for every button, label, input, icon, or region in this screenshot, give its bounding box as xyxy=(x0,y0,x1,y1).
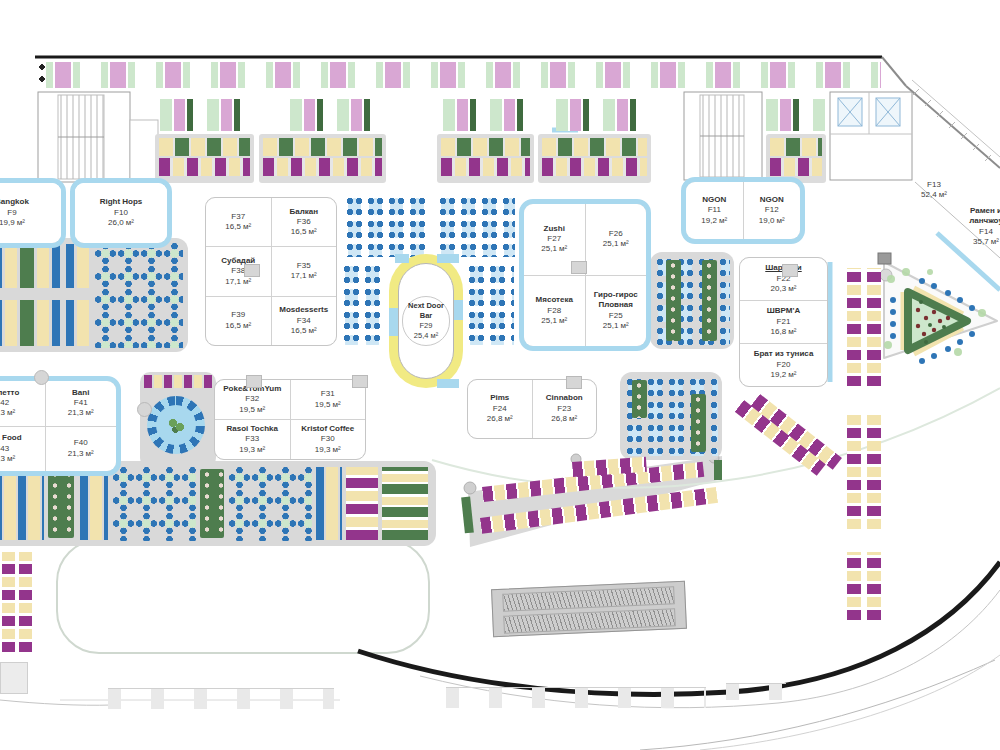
elevator-rooms-northeast xyxy=(830,92,912,180)
unit-area: 19,9 м² xyxy=(0,218,25,228)
big-round-table-planter xyxy=(156,405,196,445)
unit-code: F28 xyxy=(547,306,561,316)
bar-blue-segment xyxy=(454,300,463,320)
unit-code: F31 xyxy=(321,389,335,399)
unit-code: F25 xyxy=(609,311,623,321)
unit-name: ШВРМ'А xyxy=(767,306,800,316)
unit-f40[interactable]: F40 21,3 м² xyxy=(46,427,116,472)
seating-booths-4 xyxy=(556,99,648,131)
communal-table xyxy=(691,394,706,452)
band-benches-3 xyxy=(316,467,342,540)
unit-f34[interactable]: Mosdesserts F34 16,5 м² xyxy=(272,297,337,345)
unit-area: 21,3 м² xyxy=(0,408,15,418)
service-hatch xyxy=(244,264,260,277)
counter-row-top xyxy=(542,138,647,156)
counter-row-bottom xyxy=(770,158,822,176)
unit-area: 16,5 м² xyxy=(291,326,317,336)
band-benches-2 xyxy=(80,467,108,540)
seating-west-aisle xyxy=(0,288,90,300)
staircase-north-central xyxy=(684,92,762,180)
unit-code: F35 xyxy=(297,261,311,271)
seating-east-gap xyxy=(845,386,883,412)
unit-name: Омлетто xyxy=(0,388,19,398)
unit-code: F32 xyxy=(245,394,259,404)
unit-f13[interactable]: F13 52,4 м² xyxy=(905,180,963,201)
unit-name: Next Door Bar xyxy=(404,301,448,321)
counter-row-top xyxy=(441,138,530,156)
seating-booths-2 xyxy=(290,99,384,131)
unit-f35[interactable]: F35 17,1 м² xyxy=(272,247,337,295)
unit-code: F9 xyxy=(7,208,16,218)
unit-area: 35,7 м² xyxy=(950,237,1000,247)
bar-blue-segment xyxy=(437,254,459,263)
counter-row-bottom xyxy=(441,158,530,176)
unit-code: F21 xyxy=(777,317,791,327)
unit-area: 21,3 м² xyxy=(0,454,15,464)
counter-row-top xyxy=(263,138,382,156)
escalator xyxy=(491,581,687,637)
unit-code: F33 xyxy=(245,434,259,444)
round-table-cluster xyxy=(140,372,216,468)
unit-f33[interactable]: Rasoi Tochka F33 19,3 м² xyxy=(215,420,290,459)
band-magenta xyxy=(346,467,378,540)
escalator-lane-up xyxy=(502,586,675,611)
sw-col2 xyxy=(19,552,32,652)
unit-f42[interactable]: Омлетто F42 21,3 м² xyxy=(0,381,45,426)
unit-area: 17,1 м² xyxy=(225,277,251,287)
unit-name: Zushi xyxy=(544,224,565,234)
counter-row-bottom xyxy=(542,158,647,176)
unit-area: 16,5 м² xyxy=(291,227,317,237)
band-green-yellow xyxy=(382,467,428,540)
unit-f14[interactable]: Рамен и ланчжоу F14 35,7 м² xyxy=(950,206,1000,248)
unit-area: 26,8 м² xyxy=(551,414,577,424)
kiosk-block-f25-f28: Zushi F27 25,1 м² F26 25,1 м² Мясотека F… xyxy=(519,199,651,351)
unit-code: F24 xyxy=(493,404,507,414)
counter-row-top xyxy=(770,138,822,156)
unit-name: Рамен и xyxy=(950,206,1000,216)
unit-area: 25,1 м² xyxy=(541,316,567,326)
unit-name-line2: ланчжоу xyxy=(950,216,1000,226)
unit-name: Балкан xyxy=(289,207,318,217)
communal-table xyxy=(632,380,647,418)
bar-blue-segment xyxy=(437,379,459,388)
unit-code: F27 xyxy=(547,234,561,244)
unit-f10[interactable]: Right Hops F10 26,0 м² xyxy=(75,183,167,243)
unit-code: F43 xyxy=(0,444,9,454)
unit-f23[interactable]: Cinnabon F23 26,8 м² xyxy=(533,380,597,438)
unit-area: 26,8 м² xyxy=(487,414,513,424)
unit-name: Bangkok xyxy=(0,197,29,207)
unit-area: 26,0 м² xyxy=(108,218,134,228)
kiosk-block-f34-f39: F37 16,5 м² Балкан F36 16,5 м² Субадай F… xyxy=(205,197,337,346)
kiosk-block-f30-f33: Poke&TomYum F32 19,5 м² F31 19,5 м² Raso… xyxy=(214,379,366,460)
seating-central-1 xyxy=(344,195,428,257)
unit-area: 16,5 м² xyxy=(225,222,251,232)
kiosk-f9: Bangkok F9 19,9 м² xyxy=(0,178,66,248)
seating-east-col1 xyxy=(847,268,861,620)
column xyxy=(137,402,152,417)
counter-seating-4 xyxy=(538,134,651,183)
cluster-top-tables xyxy=(144,375,212,388)
unit-name: Гиро-гирос xyxy=(594,290,638,300)
counter-row-top xyxy=(159,138,250,156)
service-hatch xyxy=(246,375,262,388)
unit-name: Rasoi Tochka xyxy=(227,424,278,434)
unit-code: F39 xyxy=(231,310,245,320)
seating-west-hall xyxy=(0,238,188,352)
band-roundtables-2 xyxy=(228,466,312,541)
unit-code: F34 xyxy=(297,316,311,326)
seating-east-gap xyxy=(845,530,883,552)
unit-area: 19,3 м² xyxy=(239,445,265,455)
unit-f24[interactable]: Pims F24 26,8 м² xyxy=(468,380,532,438)
unit-name: Pims xyxy=(490,393,509,403)
unit-f38[interactable]: Субадай F38 17,1 м² xyxy=(206,247,271,295)
unit-area: 21,3 м² xyxy=(68,449,94,459)
seating-east-col2 xyxy=(867,268,881,620)
staircase-northwest xyxy=(38,92,158,182)
unit-name: Kristof Coffee xyxy=(301,424,354,434)
southwest-structure xyxy=(0,662,28,694)
band-roundtables-1 xyxy=(112,466,196,541)
service-hatch xyxy=(352,375,368,388)
seating-booths-5 xyxy=(766,99,826,131)
counter-seating-5 xyxy=(766,134,826,183)
communal-table xyxy=(666,260,681,341)
unit-f28[interactable]: Мясотека F28 25,1 м² xyxy=(524,276,585,347)
communal-table xyxy=(702,260,717,341)
unit-area: 16,5 м² xyxy=(225,321,251,331)
unit-f9[interactable]: Bangkok F9 19,9 м² xyxy=(0,183,61,243)
counter-seating-2 xyxy=(259,134,386,183)
unit-name: Брат из туниса xyxy=(754,349,814,359)
counter-row-bottom xyxy=(159,158,250,176)
seating-top-row xyxy=(36,58,881,92)
unit-code: F42 xyxy=(0,398,9,408)
unit-code: F23 xyxy=(557,404,571,414)
unit-f39[interactable]: F39 16,5 м² xyxy=(206,297,271,345)
unit-code: F37 xyxy=(231,212,245,222)
escalator-lane-down xyxy=(503,608,676,633)
unit-area: 20,3 м² xyxy=(771,284,797,294)
unit-code: F29 xyxy=(404,321,448,331)
unit-area: 19,3 м² xyxy=(315,445,341,455)
unit-area: 19,0 м² xyxy=(759,216,785,226)
unit-code: F20 xyxy=(777,360,791,370)
unit-f11[interactable]: NGON F11 19,2 м² xyxy=(686,182,743,239)
unit-f41[interactable]: Bani F41 21,3 м² xyxy=(46,381,116,426)
unit-area: 25,1 м² xyxy=(603,239,629,249)
foodcourt-floorplan: { "plan_title": "Food court floor plan",… xyxy=(0,0,1000,750)
unit-area: 19,5 м² xyxy=(315,400,341,410)
unit-f37[interactable]: F37 16,5 м² xyxy=(206,198,271,246)
big-round-table xyxy=(147,396,205,454)
service-hatch xyxy=(782,264,798,277)
unit-code: F36 xyxy=(297,217,311,227)
unit-name: NGON xyxy=(760,195,784,205)
unit-area: 25,1 м² xyxy=(603,321,629,331)
unit-name: Мясотека xyxy=(536,295,573,305)
bar-counter: Next Door Bar F29 25,4 м² xyxy=(398,263,454,379)
unit-f30[interactable]: Kristof Coffee F30 19,3 м² xyxy=(291,420,366,459)
unit-area: 21,3 м² xyxy=(68,408,94,418)
seating-top-row-tables xyxy=(46,62,881,88)
sw-col1 xyxy=(2,552,15,652)
unit-area: 19,2 м² xyxy=(771,370,797,380)
seating-east-strip xyxy=(845,268,883,620)
facade-blocks-3 xyxy=(726,683,786,700)
unit-area: 25,4 м² xyxy=(404,331,448,341)
seating-west-roundtables xyxy=(94,242,183,348)
unit-name: Bani xyxy=(72,388,89,398)
unit-area: 16,8 м² xyxy=(771,327,797,337)
unit-f21[interactable]: ШВРМ'А F21 16,8 м² xyxy=(740,301,827,343)
seating-southwest-strip xyxy=(0,552,34,652)
unit-code: F40 xyxy=(74,438,88,448)
unit-name-line2: Пловная xyxy=(599,300,633,310)
facade-blocks-2 xyxy=(446,687,706,708)
counter-seating-3 xyxy=(437,134,534,183)
unit-f12[interactable]: NGON F12 19,0 м² xyxy=(744,182,801,239)
seating-booths-3 xyxy=(443,99,533,131)
unit-f43[interactable]: Asia Food F43 21,3 м² xyxy=(0,427,45,472)
triangle-patio xyxy=(878,253,997,364)
seating-central-2 xyxy=(437,195,515,257)
unit-code: F14 xyxy=(950,227,1000,237)
seating-communal-east xyxy=(650,252,734,349)
bar-blue-segment xyxy=(395,254,409,263)
seating-bar-east xyxy=(466,263,514,345)
unit-f20[interactable]: Брат из туниса F20 19,2 м² xyxy=(740,344,827,386)
unit-code: F10 xyxy=(114,208,128,218)
unit-name: NGON xyxy=(702,195,726,205)
unit-f25[interactable]: Гиро-гирос Пловная F25 25,1 м² xyxy=(586,276,647,347)
unit-area: 52,4 м² xyxy=(905,190,963,200)
unit-name: Right Hops xyxy=(100,197,143,207)
service-hatch xyxy=(566,376,582,389)
kiosk-f10: Right Hops F10 26,0 м² xyxy=(70,178,172,248)
unit-code: F30 xyxy=(321,434,335,444)
unit-area: 19,2 м² xyxy=(701,216,727,226)
unit-f36[interactable]: Балкан F36 16,5 м² xyxy=(272,198,337,246)
bar-blue-segment xyxy=(389,308,398,336)
seating-bar-west xyxy=(341,263,385,345)
band-communal-1 xyxy=(48,469,74,538)
counter-row-bottom xyxy=(263,158,382,176)
unit-code: F41 xyxy=(74,398,88,408)
band-communal-2 xyxy=(200,469,224,538)
unit-name: Mosdesserts xyxy=(279,305,328,315)
band-benches-1 xyxy=(0,467,44,540)
counter-seating-1 xyxy=(155,134,254,183)
service-hatch xyxy=(571,261,587,274)
unit-name: Cinnabon xyxy=(546,393,583,403)
unit-f29: Next Door Bar F29 25,4 м² xyxy=(402,296,450,347)
kiosk-bar-f29[interactable]: Next Door Bar F29 25,4 м² xyxy=(389,254,463,388)
unit-area: 19,5 м² xyxy=(239,405,265,415)
seating-booths-1 xyxy=(160,99,253,131)
facade-blocks-1 xyxy=(108,688,334,709)
column xyxy=(34,370,49,385)
kiosk-block-ngon: NGON F11 19,2 м² NGON F12 19,0 м² xyxy=(681,177,805,244)
unit-code: F11 xyxy=(708,205,721,215)
unit-code: F26 xyxy=(609,229,623,239)
kiosk-block-f40-f43: Омлетто F42 21,3 м² Bani F41 21,3 м² Asi… xyxy=(0,376,121,476)
unit-code: F12 xyxy=(765,205,779,215)
unit-area: 17,1 м² xyxy=(291,271,317,281)
unit-code: F13 xyxy=(905,180,963,190)
unit-f26[interactable]: F26 25,1 м² xyxy=(586,204,647,275)
seating-communal-southeast xyxy=(620,372,722,460)
unit-name: Asia Food xyxy=(0,433,22,443)
unit-area: 25,1 м² xyxy=(541,244,567,254)
